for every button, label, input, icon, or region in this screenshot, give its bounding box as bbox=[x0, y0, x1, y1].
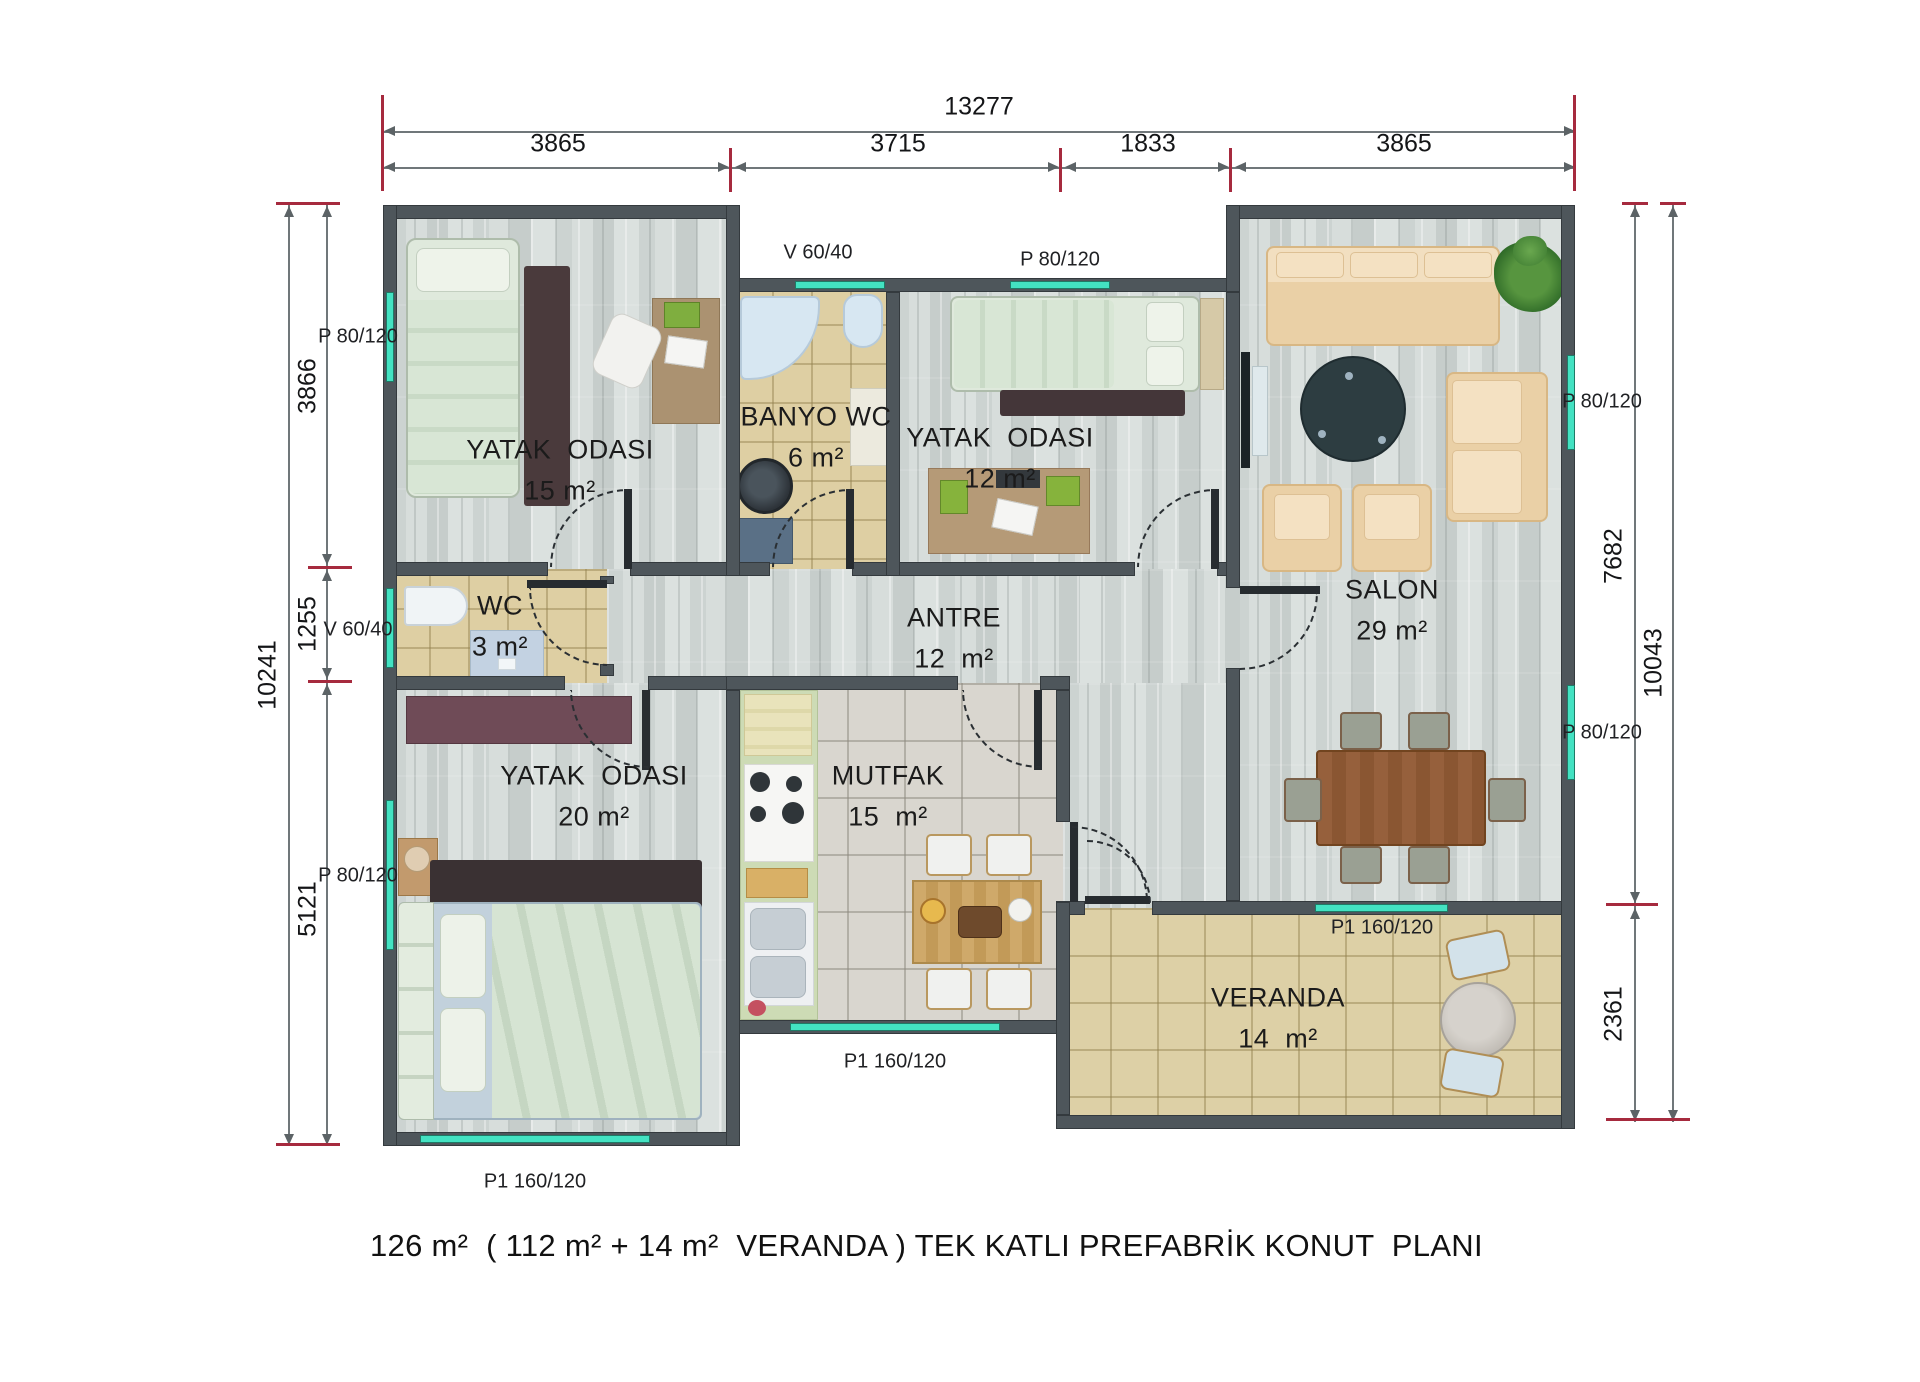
wall-segment bbox=[383, 562, 548, 576]
floor-plan-canvas: 13277 3865 3715 1833 3865 10241 3866 125… bbox=[0, 0, 1920, 1382]
dining-chair bbox=[1488, 778, 1526, 822]
dim-arrow bbox=[1630, 892, 1640, 903]
armchair-cushion bbox=[1364, 494, 1420, 540]
window-label-kitchen-bottom: P1 160/120 bbox=[844, 1051, 946, 1074]
dining-chair bbox=[1408, 712, 1450, 750]
serving-dish bbox=[958, 906, 1002, 938]
dim-tick bbox=[381, 95, 384, 191]
dim-arrow bbox=[1065, 162, 1076, 172]
dim-tick bbox=[1606, 1118, 1690, 1121]
dim-line-left-total bbox=[288, 205, 290, 1146]
nightstand-decor bbox=[404, 846, 430, 872]
sofa-cushion bbox=[1424, 252, 1492, 278]
wall-segment bbox=[1226, 292, 1240, 588]
kitchen-decor bbox=[748, 1000, 766, 1016]
room-label-kitchen: MUTFAK 15 m² bbox=[832, 756, 945, 837]
dim-arrow bbox=[384, 162, 395, 172]
plan-title: 126 m² ( 112 m² + 14 m² VERANDA ) TEK KA… bbox=[370, 1228, 1480, 1264]
dim-arrow bbox=[322, 570, 332, 581]
dim-tick bbox=[1573, 95, 1576, 191]
sofa-cushion bbox=[1452, 380, 1522, 444]
wall-segment bbox=[1226, 205, 1575, 219]
wall-segment bbox=[726, 205, 740, 576]
dim-tick bbox=[1606, 903, 1658, 906]
room-name: BANYO WC bbox=[740, 397, 891, 438]
wall-segment bbox=[1040, 676, 1070, 690]
window-kitchen-bottom bbox=[790, 1023, 1000, 1031]
dim-tick bbox=[308, 680, 352, 683]
dim-arrow bbox=[322, 554, 332, 565]
blanket bbox=[492, 904, 700, 1118]
laptop bbox=[664, 335, 708, 368]
dim-arrow bbox=[384, 126, 395, 136]
dim-label-left-s2: 1255 bbox=[294, 596, 323, 652]
dining-chair bbox=[1340, 712, 1382, 750]
dim-arrow bbox=[1630, 206, 1640, 217]
wall-segment bbox=[1226, 668, 1240, 901]
door-leaf-wc bbox=[527, 580, 607, 588]
dim-line-top-segments bbox=[383, 167, 1575, 169]
burner bbox=[750, 772, 770, 792]
room-label-bedroom2: YATAK ODASI 12 m² bbox=[906, 418, 1094, 499]
dim-label-right-s1: 7682 bbox=[1600, 528, 1629, 584]
room-name: ANTRE bbox=[907, 598, 1001, 639]
dim-tick bbox=[1059, 148, 1062, 192]
sink-basin bbox=[750, 908, 806, 950]
window-bedroom2-top bbox=[1010, 281, 1110, 289]
room-area: 12 m² bbox=[907, 638, 1001, 679]
dim-label-right-total: 10043 bbox=[1640, 628, 1669, 698]
dim-label-left-total: 10241 bbox=[254, 640, 283, 710]
room-name: MUTFAK bbox=[832, 756, 945, 797]
fridge bbox=[744, 694, 812, 756]
window-label-veranda-top: P1 160/120 bbox=[1331, 917, 1433, 940]
burner bbox=[786, 776, 802, 792]
dim-label-top-s2: 3715 bbox=[870, 130, 926, 159]
toilet bbox=[843, 294, 883, 348]
window-label-bathroom-top: V 60/40 bbox=[784, 242, 853, 265]
dim-arrow bbox=[322, 684, 332, 695]
room-name: YATAK ODASI bbox=[466, 430, 654, 471]
sofa-cushion bbox=[1276, 252, 1344, 278]
tv bbox=[1241, 352, 1250, 468]
dim-tick bbox=[276, 202, 340, 205]
dining-chair bbox=[1408, 846, 1450, 884]
wall-segment bbox=[630, 562, 770, 576]
dining-table bbox=[1316, 750, 1486, 846]
dim-arrow bbox=[1668, 206, 1678, 217]
window-label-bedroom2-top: P 80/120 bbox=[1020, 249, 1100, 272]
pillow bbox=[1146, 346, 1184, 386]
veranda-table bbox=[1440, 982, 1516, 1058]
wall-segment bbox=[726, 690, 740, 1146]
pillow bbox=[1146, 302, 1184, 342]
pillow bbox=[416, 248, 510, 292]
dim-arrow bbox=[1048, 162, 1059, 172]
burner bbox=[750, 806, 766, 822]
armchair-cushion bbox=[1274, 494, 1330, 540]
dim-label-top-total: 13277 bbox=[944, 93, 1014, 122]
dim-label-top-s3: 1833 bbox=[1120, 130, 1176, 159]
dim-arrow bbox=[1218, 162, 1229, 172]
room-name: YATAK ODASI bbox=[906, 418, 1094, 459]
window-label-wc-left: V 60/40 bbox=[324, 619, 393, 642]
toilet bbox=[404, 586, 468, 626]
dim-arrow bbox=[322, 206, 332, 217]
room-area: 14 m² bbox=[1211, 1018, 1345, 1059]
room-area: 12 m² bbox=[906, 458, 1094, 499]
dim-tick bbox=[276, 1143, 340, 1146]
table-dot bbox=[1345, 372, 1353, 380]
window-label-bedroom3-bottom: P1 160/120 bbox=[484, 1171, 586, 1194]
dim-arrow bbox=[1630, 908, 1640, 919]
table-dot bbox=[1378, 436, 1386, 444]
wall-segment bbox=[383, 676, 565, 690]
room-label-bedroom1: YATAK ODASI 15 m² bbox=[466, 430, 654, 511]
tv-stand bbox=[1252, 366, 1268, 456]
dining-chair bbox=[1340, 846, 1382, 884]
dim-arrow bbox=[718, 162, 729, 172]
kitchen-chair bbox=[986, 968, 1032, 1010]
dim-tick bbox=[729, 148, 732, 192]
dim-label-right-s2: 2361 bbox=[1600, 986, 1629, 1042]
dim-label-left-s3: 5121 bbox=[294, 881, 323, 937]
window-label-bedroom3-left: P 80/120 bbox=[318, 865, 398, 888]
room-area: 6 m² bbox=[740, 437, 891, 478]
window-bathroom-top bbox=[795, 281, 885, 289]
wall-segment bbox=[1056, 690, 1070, 822]
room-label-bedroom3: YATAK ODASI 20 m² bbox=[500, 756, 688, 837]
room-area: 3 m² bbox=[472, 626, 528, 667]
dim-arrow bbox=[735, 162, 746, 172]
room-area: 15 m² bbox=[832, 796, 945, 837]
room-label-wc: WC 3 m² bbox=[472, 586, 528, 667]
desk-accessory bbox=[664, 302, 700, 328]
room-name: SALON bbox=[1345, 570, 1439, 611]
plate bbox=[1008, 898, 1032, 922]
wall-segment bbox=[1056, 902, 1070, 1115]
dim-label-left-s1: 3866 bbox=[294, 358, 323, 414]
wall-segment bbox=[383, 205, 740, 219]
dim-tick bbox=[1622, 202, 1648, 205]
sofa-cushion bbox=[1452, 450, 1522, 514]
pillow bbox=[440, 914, 486, 998]
room-label-salon: SALON 29 m² bbox=[1345, 570, 1439, 651]
dim-arrow bbox=[284, 206, 294, 217]
dim-line-right-segments bbox=[1634, 205, 1636, 1122]
room-area: 15 m² bbox=[466, 470, 654, 511]
burner bbox=[782, 802, 804, 824]
kitchen-chair bbox=[926, 834, 972, 876]
window-veranda-top bbox=[1315, 904, 1448, 912]
dim-arrow bbox=[322, 668, 332, 679]
table-dot bbox=[1318, 430, 1326, 438]
plate bbox=[920, 898, 946, 924]
wall-segment bbox=[1056, 1115, 1575, 1129]
window-bedroom3-bottom bbox=[420, 1135, 650, 1143]
dim-tick bbox=[1660, 202, 1686, 205]
wall-segment bbox=[1226, 205, 1240, 292]
window-label-salon-right-upper: P 80/120 bbox=[1562, 391, 1642, 414]
window-label-bedroom1-left: P 80/120 bbox=[318, 326, 398, 349]
kitchen-chair bbox=[926, 968, 972, 1010]
kitchen-chair bbox=[986, 834, 1032, 876]
room-name: VERANDA bbox=[1211, 978, 1345, 1019]
window-label-salon-right-lower: P 80/120 bbox=[1562, 722, 1642, 745]
room-name: YATAK ODASI bbox=[500, 756, 688, 797]
sink-basin bbox=[750, 956, 806, 998]
dining-chair bbox=[1284, 778, 1322, 822]
room-area: 20 m² bbox=[500, 796, 688, 837]
room-label-hall: ANTRE 12 m² bbox=[907, 598, 1001, 679]
dim-line-right-total bbox=[1672, 205, 1674, 1122]
sofa-cushion bbox=[1350, 252, 1418, 278]
headboard bbox=[398, 902, 434, 1120]
room-label-bathroom: BANYO WC 6 m² bbox=[740, 397, 891, 478]
room-area: 29 m² bbox=[1345, 610, 1439, 651]
wall-segment bbox=[1561, 205, 1575, 1129]
dim-tick bbox=[308, 566, 352, 569]
pillow bbox=[440, 1008, 486, 1092]
room-label-veranda: VERANDA 14 m² bbox=[1211, 978, 1345, 1059]
dim-label-top-s1: 3865 bbox=[530, 130, 586, 159]
headboard-bench bbox=[1200, 298, 1224, 390]
coffee-table bbox=[1300, 356, 1406, 462]
dim-arrow bbox=[1235, 162, 1246, 172]
blanket bbox=[954, 300, 1114, 388]
dim-label-top-s4: 3865 bbox=[1376, 130, 1432, 159]
rug bbox=[1000, 390, 1185, 416]
room-name: WC bbox=[472, 586, 528, 627]
dim-tick bbox=[1229, 148, 1232, 192]
cutting-board bbox=[746, 868, 808, 898]
